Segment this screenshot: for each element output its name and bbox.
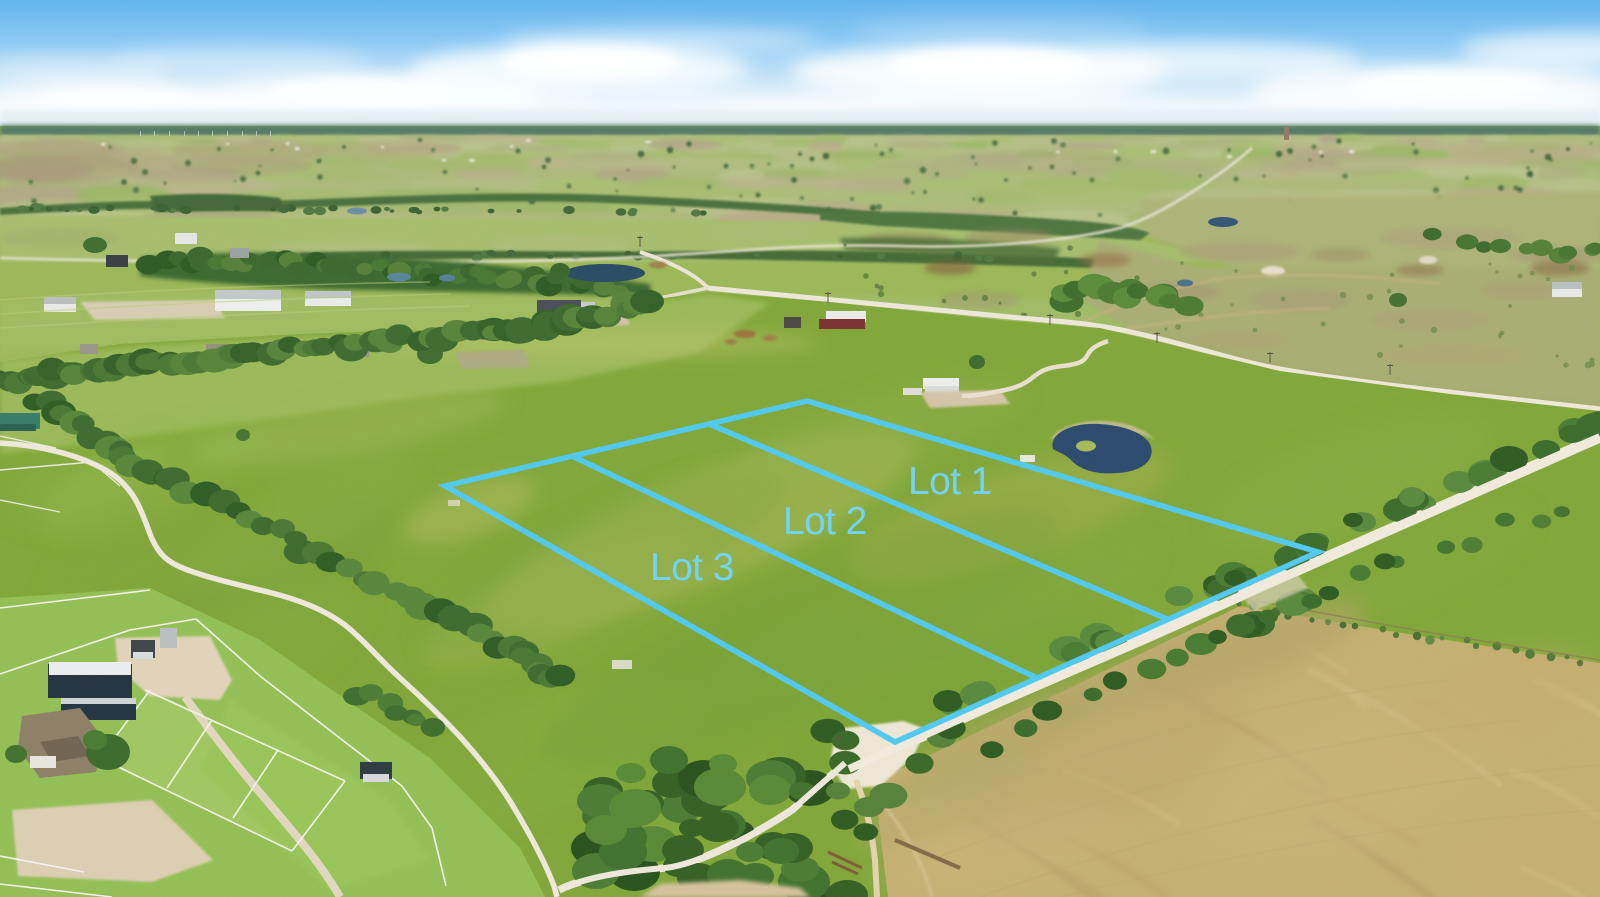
svg-text:Lot 1: Lot 1 — [908, 460, 992, 503]
svg-text:Lot 3: Lot 3 — [650, 546, 734, 589]
svg-text:Lot 2: Lot 2 — [783, 500, 867, 543]
